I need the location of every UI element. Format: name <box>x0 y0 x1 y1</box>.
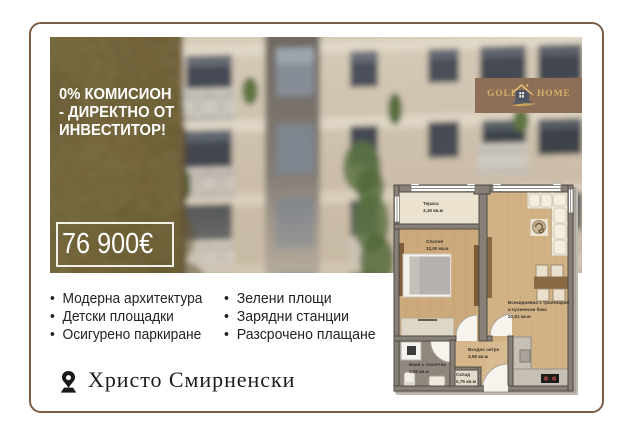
svg-text:и кухненски бокс: и кухненски бокс <box>508 306 548 312</box>
svg-text:3,59 кв.м: 3,59 кв.м <box>468 354 489 359</box>
svg-text:Входно антре: Входно антре <box>468 347 500 352</box>
svg-text:0,75 кв.м: 0,75 кв.м <box>456 379 477 384</box>
svg-text:Всекидневна с трапезария: Всекидневна с трапезария <box>508 300 569 305</box>
svg-text:3,55 кв.м: 3,55 кв.м <box>409 369 430 374</box>
svg-text:Баня с тоалетна: Баня с тоалетна <box>409 362 446 367</box>
svg-text:Тераса: Тераса <box>423 201 439 206</box>
svg-text:Склад: Склад <box>456 372 470 377</box>
svg-text:Спалня: Спалня <box>426 239 443 244</box>
svg-text:12,00 кв.м: 12,00 кв.м <box>426 246 449 251</box>
svg-text:3,16 кв.м: 3,16 кв.м <box>423 208 444 213</box>
svg-text:20,81 кв.м: 20,81 кв.м <box>508 314 531 319</box>
